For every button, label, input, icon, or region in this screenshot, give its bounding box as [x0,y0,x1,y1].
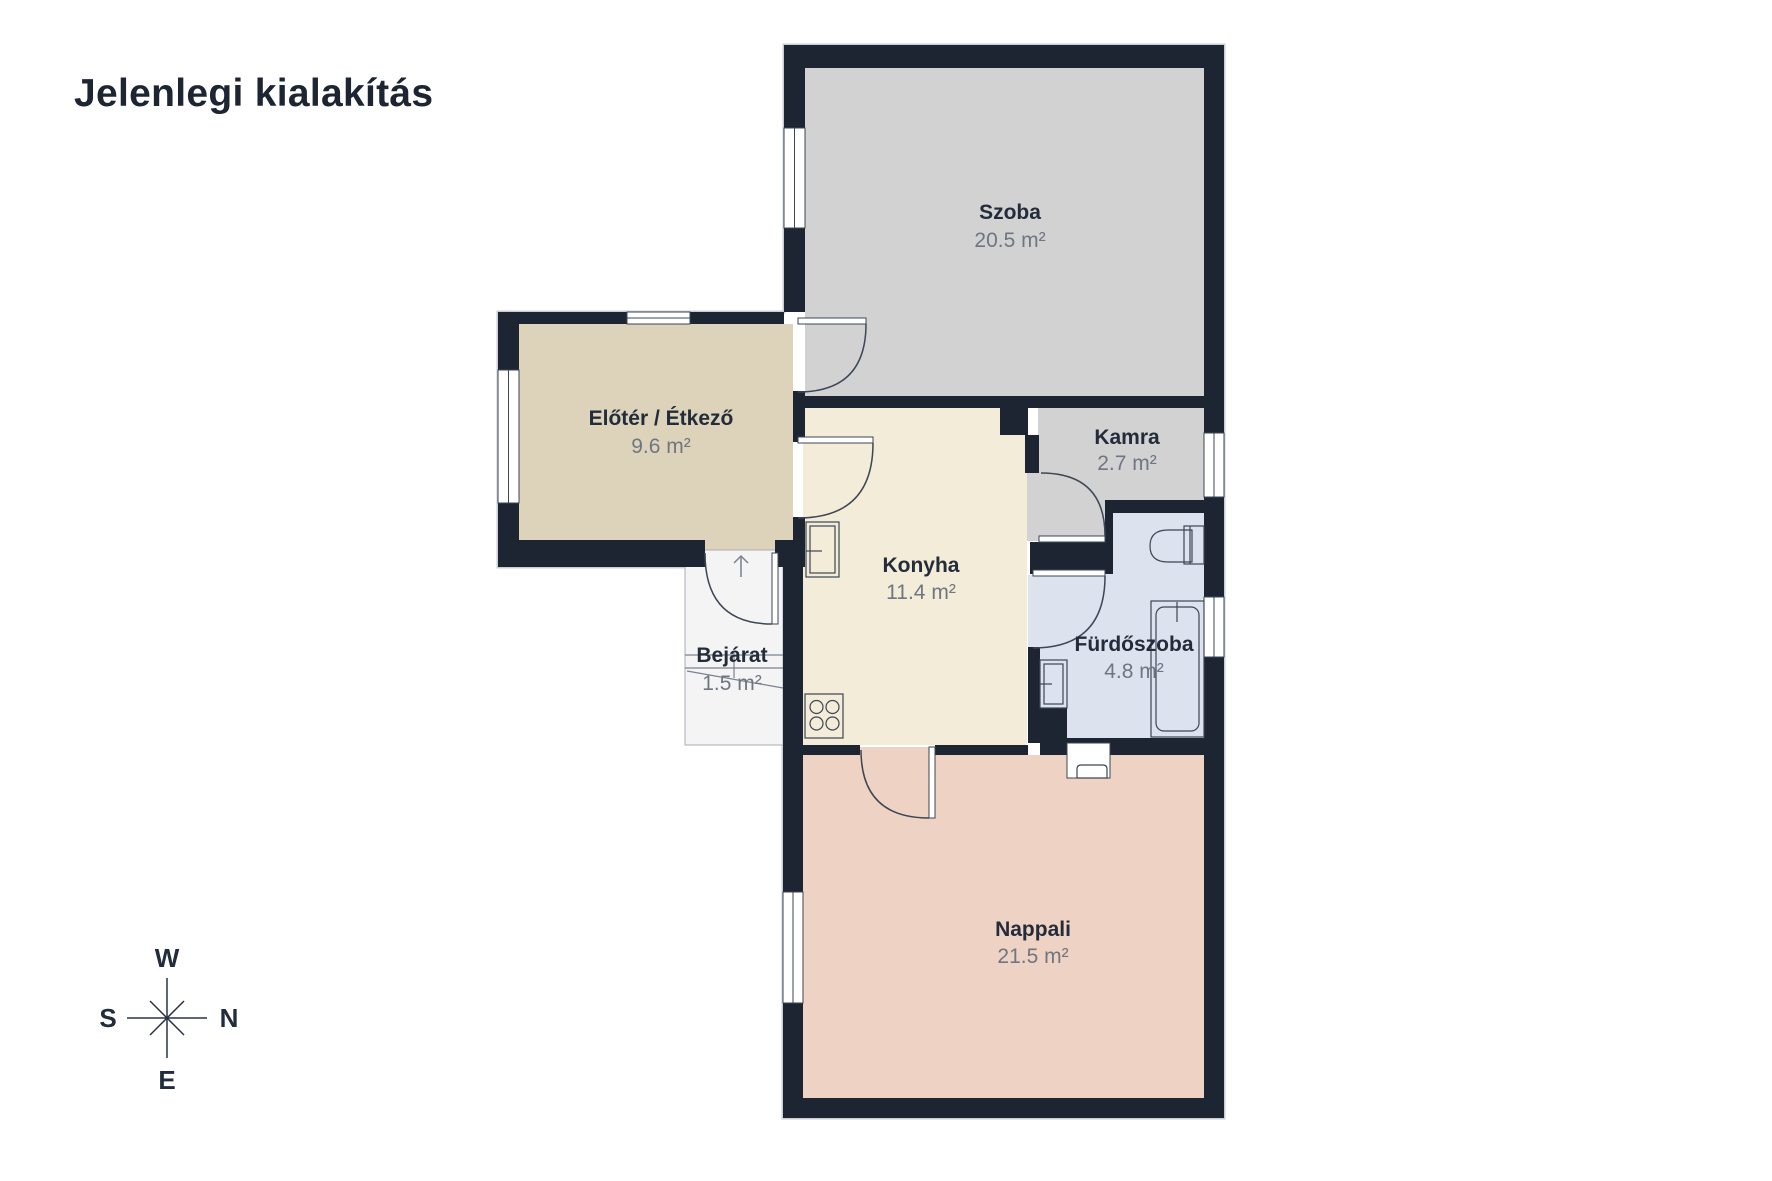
compass-south: S [99,1003,116,1033]
room-name-szoba: Szoba [979,201,1041,224]
room-name-eloter: Előtér / Étkező [589,407,734,430]
room-area-eloter: 9.6 m² [631,435,691,458]
room-name-konyha: Konyha [882,554,959,577]
room-name-furdoszoba: Fürdőszoba [1075,633,1194,656]
compass-rose-icon: W N S E [99,943,238,1095]
compass-north: N [220,1003,239,1033]
window-furdoszoba-right [1204,597,1224,657]
floor-plan: Szoba Előtér / Étkező Kamra Konyha Fürdő… [0,0,1772,1181]
room-name-nappali: Nappali [995,918,1071,941]
window-eloter-left [498,370,519,503]
window-nappali-left [783,892,803,1003]
room-area-szoba: 20.5 m² [974,229,1045,252]
compass-lines [127,978,207,1058]
room-area-bejarat: 1.5 m² [702,672,762,695]
room-area-konyha: 11.4 m² [886,581,956,604]
room-name-bejarat: Bejárat [696,644,767,667]
compass-west: W [155,943,180,973]
room-area-furdoszoba: 4.8 m² [1104,660,1164,683]
room-name-kamra: Kamra [1094,426,1160,449]
compass-east: E [158,1065,175,1095]
room-area-kamra: 2.7 m² [1097,452,1157,475]
window-eloter-top [627,312,690,324]
room-floor-eloter [519,324,793,540]
window-kamra-right [1204,433,1224,497]
room-area-nappali: 21.5 m² [997,945,1068,968]
window-szoba-left [784,128,805,228]
heater-niche-icon [1067,743,1110,778]
